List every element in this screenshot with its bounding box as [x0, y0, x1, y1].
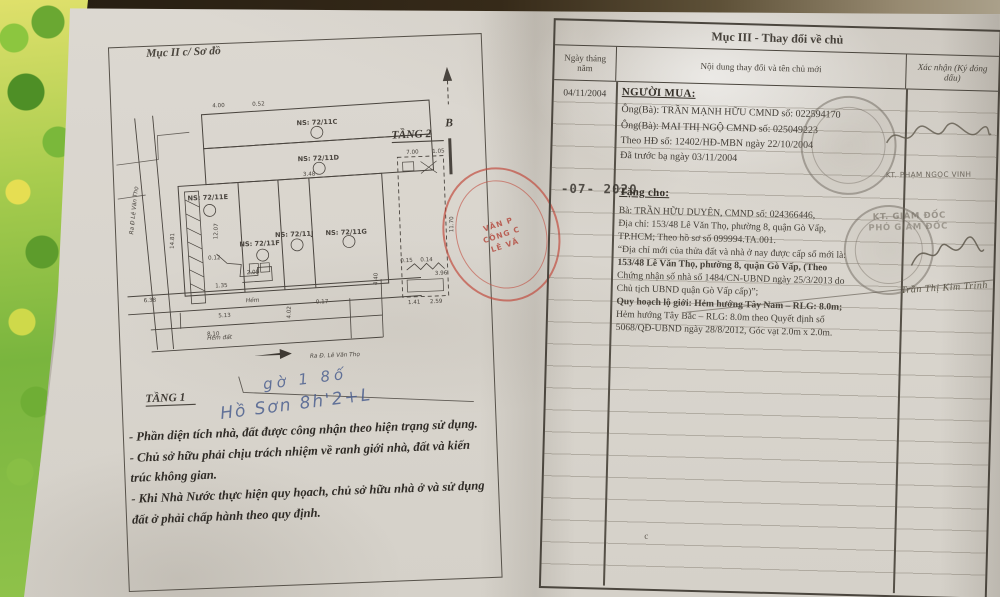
- round-seal-inner-ring: [811, 106, 887, 185]
- dim-label: 3.48: [303, 172, 316, 178]
- dim-label: 7.00: [406, 150, 419, 156]
- room-label: NS: 72/11E: [187, 193, 228, 203]
- room-label: NS: 72/11C: [296, 118, 337, 128]
- entry-heading: Tặng cho:: [619, 186, 669, 199]
- table-body: 04/11/2004 NGƯỜI MUA: Ông(Bà): TRẦN MẠNH…: [541, 80, 998, 595]
- plan-notes: - Phần diện tích nhà, đất được công nhận…: [129, 413, 495, 531]
- entry-heading: NGƯỜI MUA:: [622, 86, 696, 100]
- alley-label: Hẻm: [246, 297, 260, 305]
- north-label: B: [444, 117, 453, 129]
- document-photo: Mục II c/ Sơ đồ: [0, 0, 1000, 597]
- street-label: Ra Đ. Lê Văn Thọ: [310, 351, 361, 360]
- dim-label: 1.35: [215, 283, 228, 289]
- dim-label: 4.00: [212, 103, 225, 109]
- dim-label: 1.41: [408, 300, 421, 306]
- dim-label: 12.07: [213, 223, 220, 240]
- floor2-label: TẦNG 2: [391, 125, 432, 142]
- confirm-signer-name: KT. PHẠM NGỌC VINH: [886, 170, 972, 180]
- stray-mark: c: [644, 531, 648, 541]
- dim-label: 0.12: [208, 255, 221, 261]
- signature-scrawl: [882, 115, 993, 158]
- dim-label: 3.96: [435, 271, 448, 277]
- dim-label: 1.05: [432, 149, 445, 155]
- dim-label: 8.10: [207, 331, 220, 337]
- dim-label: 4.40: [373, 272, 379, 285]
- road-label-vertical: Ra Đ Lê Văn Thọ: [128, 186, 140, 235]
- room-label: NS: 72/11F: [239, 239, 280, 249]
- entry-date: 04/11/2004: [556, 88, 614, 100]
- dim-label: 0.17: [316, 299, 329, 305]
- dim-label: 2.59: [430, 299, 443, 305]
- right-page-ownership-table: Mục III - Thay đổi về chủ Ngày tháng năm…: [533, 10, 1000, 597]
- dim-label: 6.38: [144, 298, 157, 304]
- dim-label: 0.15: [400, 258, 413, 264]
- room-label: NS: 72/11G: [325, 228, 367, 238]
- signature-scrawl: [905, 227, 986, 275]
- col-date-header: Ngày tháng năm: [554, 45, 617, 81]
- left-page-site-plan: Mục II c/ Sơ đồ: [97, 11, 514, 597]
- dim-label: 0.52: [252, 101, 265, 107]
- floor1-label: TẦNG 1: [145, 389, 185, 406]
- room-label: NS: 72/11D: [298, 154, 340, 164]
- dim-label: 2.05: [247, 270, 260, 276]
- ownership-table: Mục III - Thay đổi về chủ Ngày tháng năm…: [539, 18, 1000, 597]
- street-arrow-icon: [254, 349, 292, 360]
- room-label: NS: 72/11J: [275, 230, 314, 239]
- col-confirm-header: Xác nhận (Ký đóng dấu): [906, 54, 999, 90]
- dim-label: 0.14: [420, 257, 433, 263]
- dim-label: 5.13: [218, 313, 231, 319]
- dim-label: 4.02: [286, 306, 292, 319]
- dim-label: 14.81: [170, 232, 177, 249]
